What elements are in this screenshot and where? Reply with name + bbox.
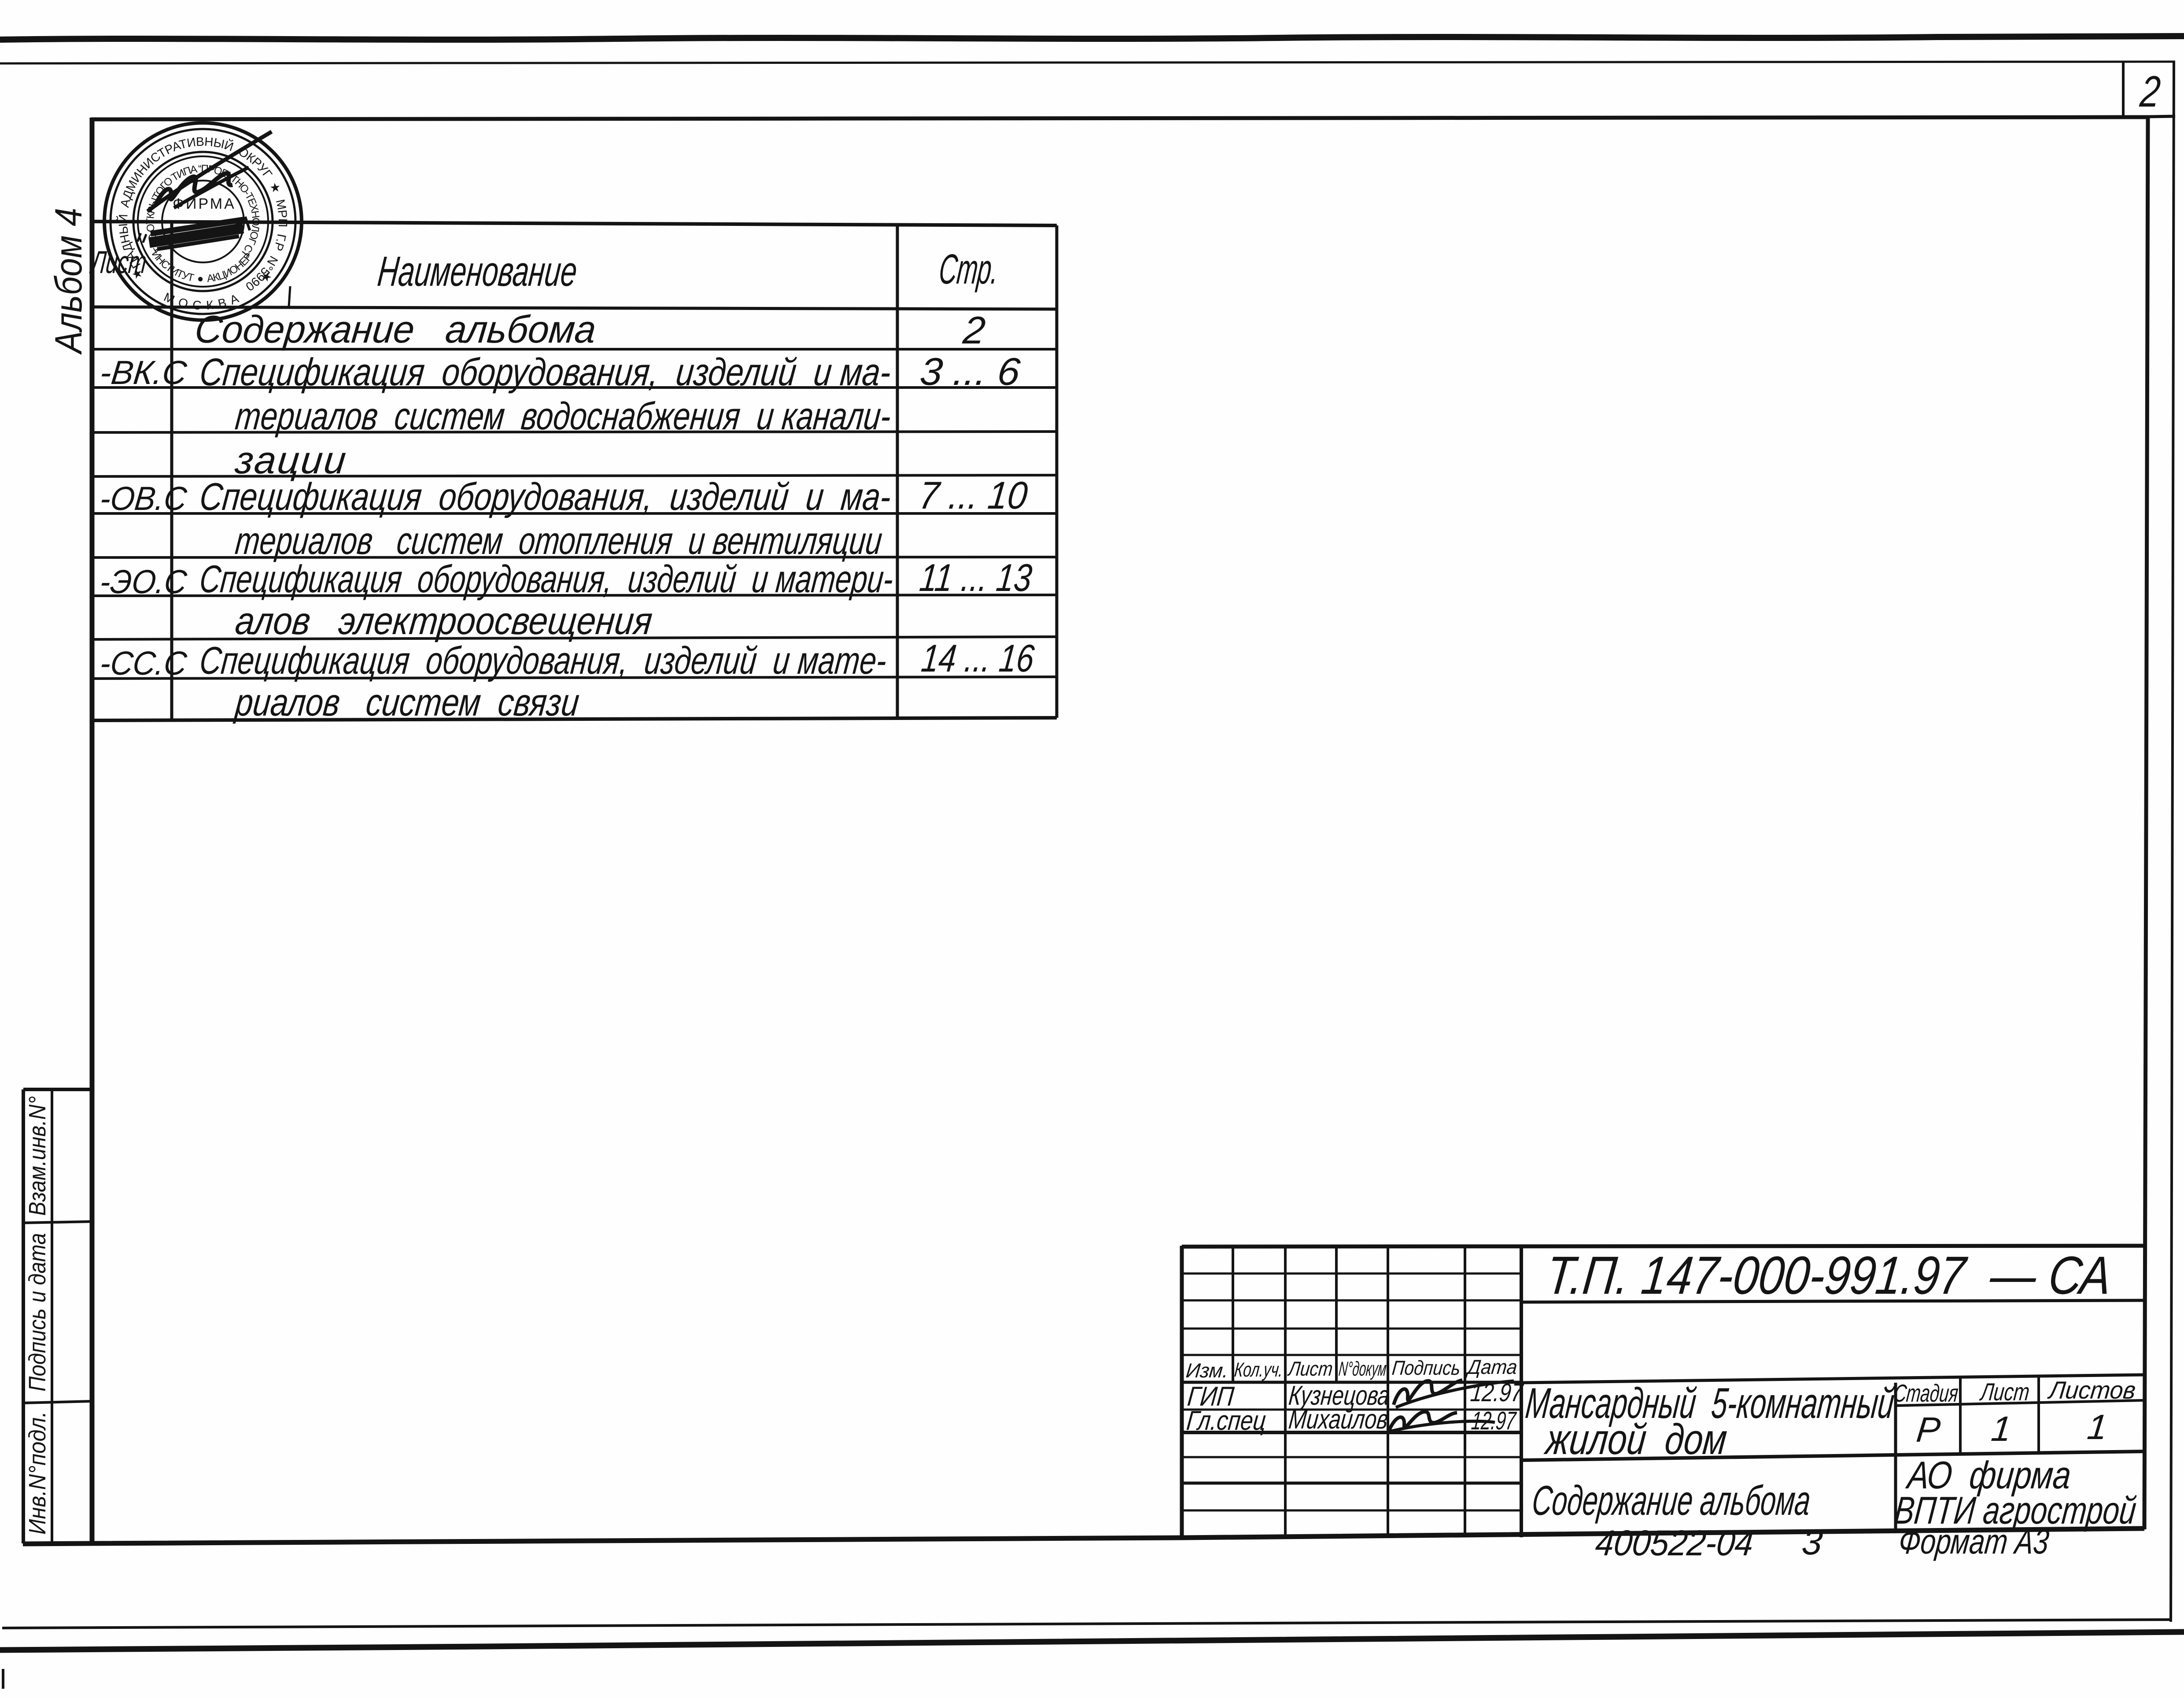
svg-text:Подпись: Подпись xyxy=(1391,1356,1461,1379)
svg-text:-СС.С: -СС.С xyxy=(98,645,189,682)
svg-text:Стр.: Стр. xyxy=(937,246,1001,293)
svg-text:териалов систем отопления: териалов систем отопления и вентиляции xyxy=(233,519,884,562)
svg-text:Р: Р xyxy=(1915,1410,1942,1449)
svg-text:Лист: Лист xyxy=(1286,1357,1334,1380)
svg-text:Кол.уч.: Кол.уч. xyxy=(1233,1358,1284,1381)
svg-text:Содержание альбома: Содержание альбома xyxy=(193,307,598,351)
svg-text:Наименование: Наименование xyxy=(376,248,579,295)
svg-text:400522-04: 400522-04 xyxy=(1594,1523,1756,1563)
svg-text:Взам.инв.N°: Взам.инв.N° xyxy=(24,1096,51,1216)
svg-text:-ОВ.С: -ОВ.С xyxy=(98,480,189,517)
svg-text:Альбом 4: Альбом 4 xyxy=(48,208,90,355)
svg-text:Спецификация оборудования, и: Спецификация оборудования, изделий и мат… xyxy=(198,639,889,682)
svg-text:териалов систем водоснабжени: териалов систем водоснабжения и канали- xyxy=(233,394,893,438)
svg-text:1: 1 xyxy=(1989,1409,2013,1448)
svg-text:Стадия: Стадия xyxy=(1893,1379,1960,1407)
svg-text:Дата: Дата xyxy=(1465,1355,1518,1378)
svg-text:Содержание альбома: Содержание альбома xyxy=(1530,1477,1813,1524)
svg-text:14 ... 16: 14 ... 16 xyxy=(919,636,1037,680)
svg-text:Формат А3: Формат А3 xyxy=(1897,1521,2051,1561)
svg-text:риалов систем связи: риалов систем связи xyxy=(232,680,582,724)
svg-text:3: 3 xyxy=(1800,1522,1824,1562)
svg-text:жилой дом: жилой дом xyxy=(1542,1415,1730,1463)
svg-text:Листов: Листов xyxy=(2047,1376,2137,1404)
svg-text:N°докум: N°докум xyxy=(1338,1357,1387,1380)
svg-text:11 ... 13: 11 ... 13 xyxy=(918,556,1034,599)
svg-text:Т.П. 147-000-991.97 — СА: Т.П. 147-000-991.97 — СА xyxy=(1543,1245,2114,1305)
svg-text:2: 2 xyxy=(961,308,987,352)
svg-text:-ЭО.С: -ЭО.С xyxy=(98,563,189,601)
svg-text:1: 1 xyxy=(2085,1407,2109,1447)
svg-text:7 ... 10: 7 ... 10 xyxy=(917,473,1029,517)
svg-text:Михайлов: Михайлов xyxy=(1287,1404,1389,1435)
svg-text:3 ... 6: 3 ... 6 xyxy=(918,350,1022,393)
svg-text:Инв.N°подл.: Инв.N°подл. xyxy=(24,1411,51,1535)
svg-text:-ВК.С: -ВК.С xyxy=(98,354,189,391)
svg-text:Подпись и дата: Подпись и дата xyxy=(24,1233,51,1392)
svg-text:Спецификация оборудования, и: Спецификация оборудования, изделий и ма- xyxy=(198,475,893,518)
svg-text:Изм.: Изм. xyxy=(1185,1359,1229,1382)
svg-text:Лист: Лист xyxy=(1978,1378,2031,1406)
svg-text:Гл.спец: Гл.спец xyxy=(1185,1406,1268,1436)
svg-text:Спецификация оборудования, и: Спецификация оборудования, изделий и ма- xyxy=(198,350,893,394)
svg-text:алов электроосвещения: алов электроосвещения xyxy=(233,599,654,642)
svg-text:Спецификация оборудования, и: Спецификация оборудования, изделий и мат… xyxy=(198,557,895,601)
